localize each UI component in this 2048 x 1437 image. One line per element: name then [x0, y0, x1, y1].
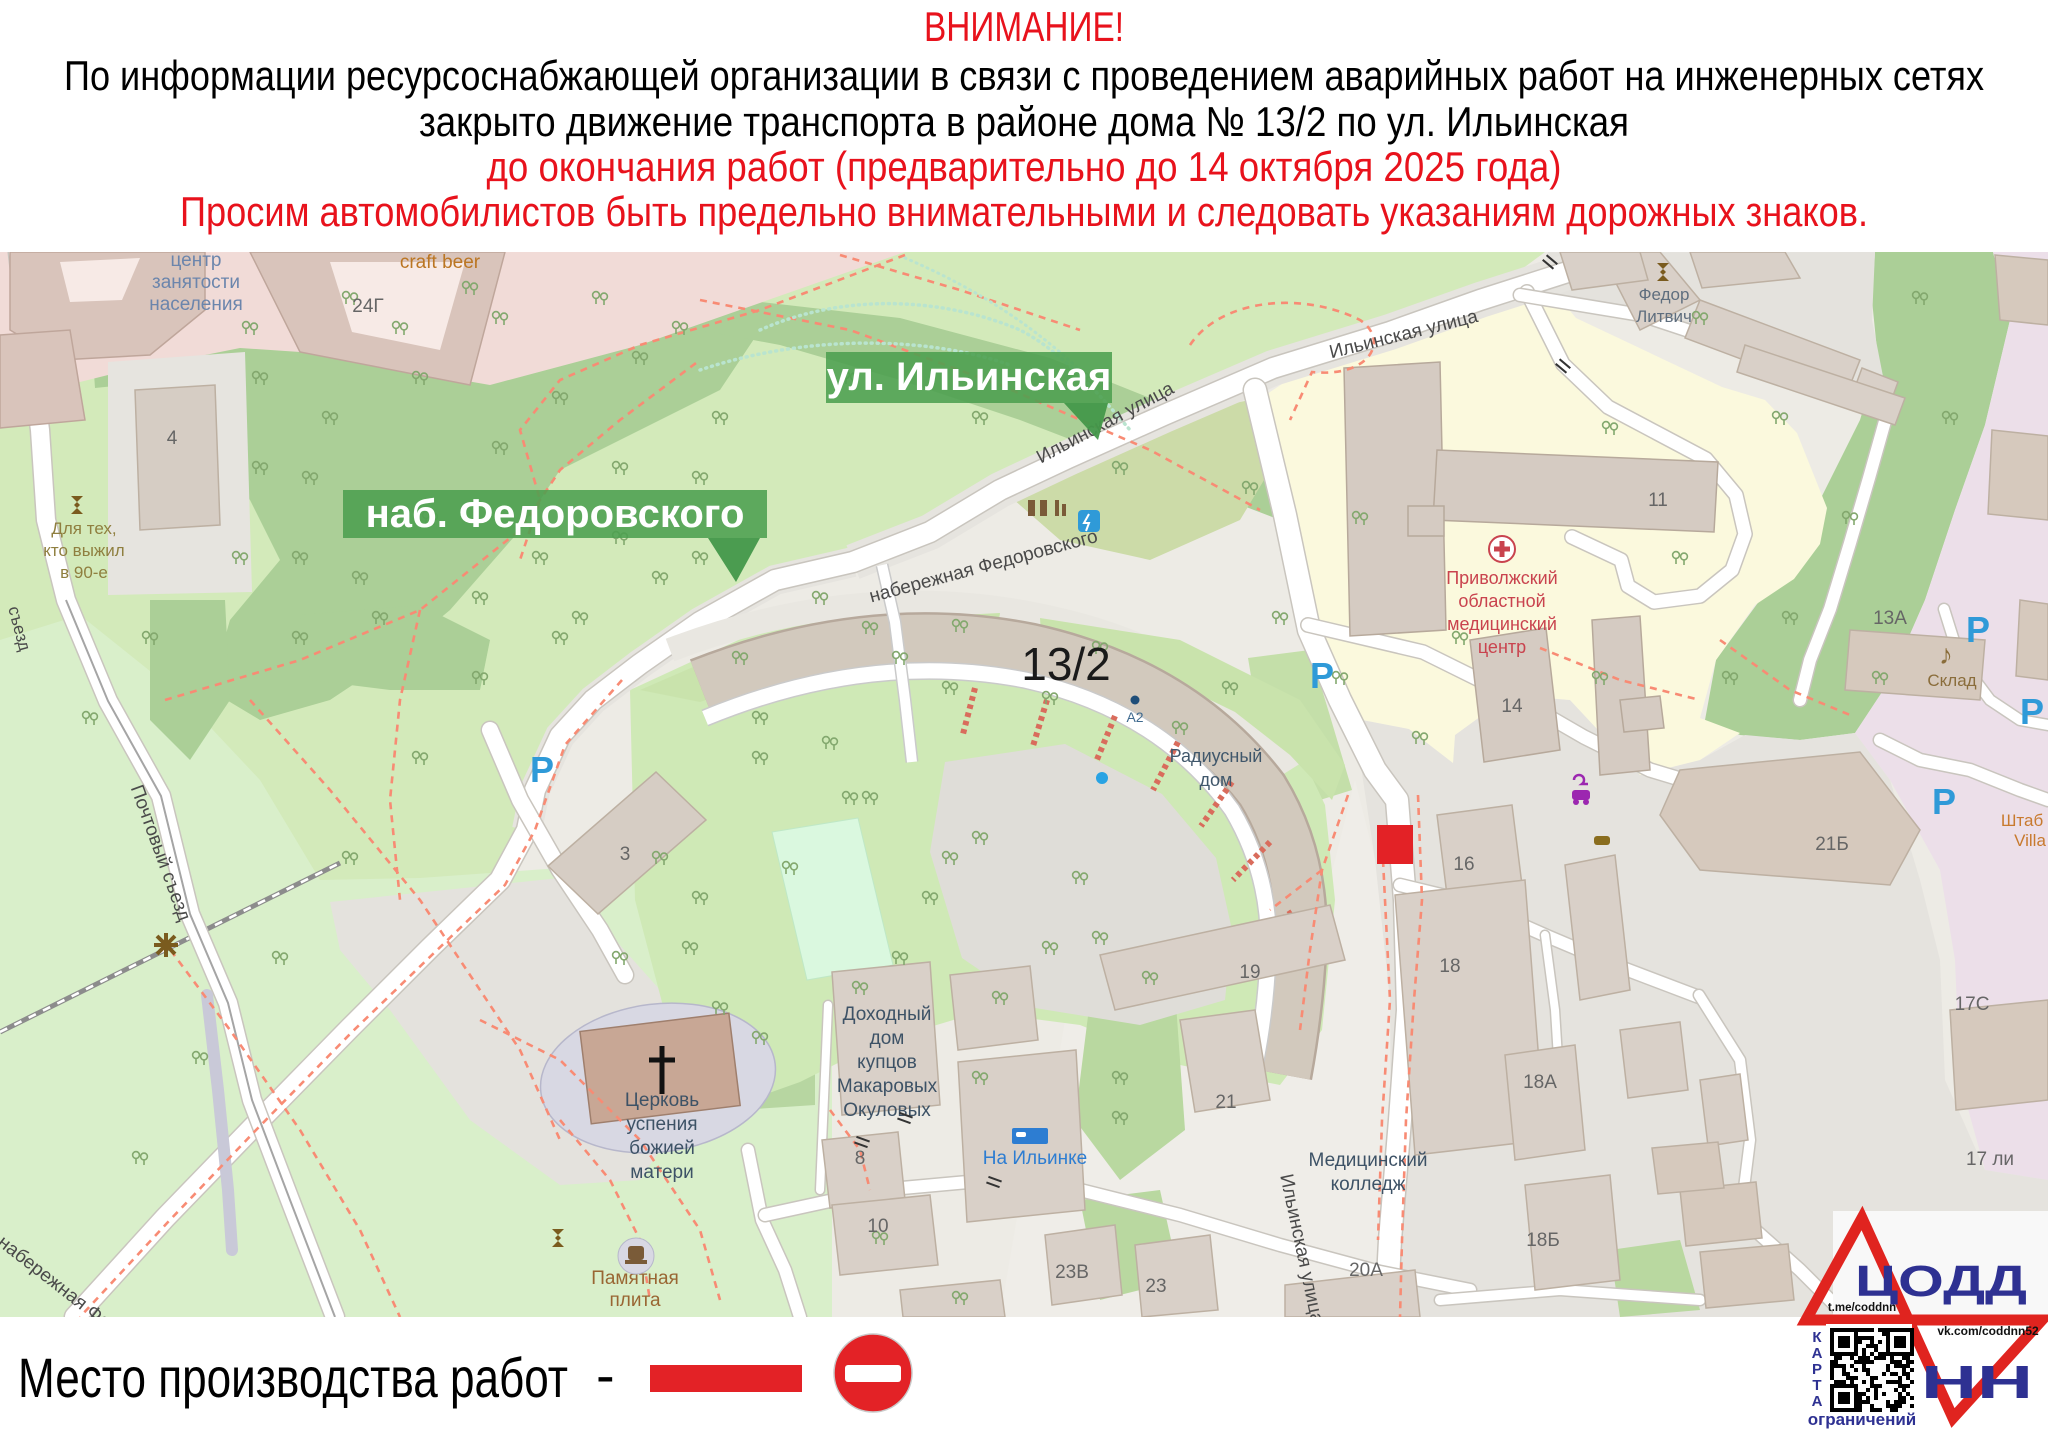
svg-text:дом: дом	[870, 1028, 905, 1049]
svg-text:Приволжский: Приволжский	[1446, 568, 1558, 588]
svg-text:А: А	[1812, 1393, 1823, 1410]
svg-text:центр: центр	[1478, 637, 1526, 657]
svg-text:центр: центр	[171, 250, 222, 271]
svg-text:А: А	[1812, 1345, 1823, 1362]
svg-text:На Ильинке: На Ильинке	[983, 1148, 1087, 1169]
svg-text:18А: 18А	[1523, 1072, 1557, 1093]
svg-text:Макаровых: Макаровых	[837, 1076, 938, 1097]
svg-text:17 ли: 17 ли	[1966, 1149, 2014, 1170]
svg-text:Литвич: Литвич	[1636, 307, 1692, 326]
svg-text:P: P	[1966, 609, 1990, 650]
svg-text:ограничений: ограничений	[1808, 1410, 1917, 1429]
svg-text:P: P	[530, 749, 554, 790]
svg-text:A2: A2	[1126, 709, 1143, 725]
svg-text:областной: областной	[1458, 591, 1545, 611]
svg-text:Villa: Villa	[2014, 831, 2046, 850]
svg-text:vk.com/coddnn52: vk.com/coddnn52	[1937, 1324, 2039, 1338]
svg-text:4: 4	[167, 428, 178, 449]
svg-text:21: 21	[1215, 1092, 1236, 1113]
svg-text:19: 19	[1239, 962, 1260, 983]
svg-text:Место производства работ: Место производства работ	[18, 1346, 568, 1409]
svg-text:Р: Р	[1812, 1361, 1822, 1378]
svg-text:P: P	[2020, 691, 2044, 732]
svg-text:ЦОДД: ЦОДД	[1855, 1257, 2027, 1306]
svg-text:Просим автомобилистов быть пре: Просим автомобилистов быть предельно вни…	[180, 188, 1868, 235]
svg-text:17С: 17С	[1955, 994, 1990, 1015]
svg-text:матери: матери	[630, 1162, 693, 1183]
svg-text:23В: 23В	[1055, 1262, 1089, 1283]
svg-text:18Б: 18Б	[1526, 1230, 1560, 1251]
svg-text:Штаб: Штаб	[2001, 811, 2044, 830]
svg-text:18: 18	[1439, 956, 1460, 977]
svg-text:21Б: 21Б	[1815, 834, 1849, 855]
svg-text:Для тех,: Для тех,	[51, 519, 116, 538]
svg-text:медицинский: медицинский	[1447, 614, 1557, 634]
svg-text:t.me/coddnn: t.me/coddnn	[1828, 1302, 1896, 1314]
svg-text:По информации ресурсоснабжающе: По информации ресурсоснабжающей организа…	[64, 52, 1984, 99]
svg-text:16: 16	[1453, 854, 1474, 875]
svg-text:Церковь: Церковь	[625, 1090, 699, 1111]
svg-text:20А: 20А	[1349, 1260, 1383, 1281]
svg-text:занятости: занятости	[152, 272, 240, 293]
svg-text:населения: населения	[149, 294, 243, 315]
svg-text:Окуловых: Окуловых	[843, 1100, 931, 1121]
svg-text:Т: Т	[1812, 1377, 1821, 1394]
svg-text:плита: плита	[609, 1290, 660, 1311]
svg-text:в 90-е: в 90-е	[60, 563, 108, 582]
svg-text:Доходный: Доходный	[843, 1004, 932, 1025]
svg-text:10: 10	[867, 1216, 888, 1237]
svg-text:ул. Ильинская: ул. Ильинская	[827, 355, 1112, 399]
svg-text:божией: божией	[629, 1138, 695, 1159]
svg-text:8: 8	[855, 1148, 866, 1169]
svg-text:дом: дом	[1200, 770, 1233, 790]
svg-text:Радиусный: Радиусный	[1170, 746, 1263, 766]
svg-text:-: -	[596, 1343, 615, 1406]
svg-text:Медицинский: Медицинский	[1309, 1150, 1428, 1171]
svg-text:13/2: 13/2	[1021, 638, 1111, 690]
svg-text:♪: ♪	[1939, 639, 1953, 670]
svg-text:P: P	[1310, 655, 1334, 696]
svg-text:ВНИМАНИЕ!: ВНИМАНИЕ!	[924, 3, 1124, 50]
svg-text:14: 14	[1501, 696, 1523, 717]
svg-text:P: P	[1932, 781, 1956, 822]
svg-text:3: 3	[620, 844, 631, 865]
svg-text:до окончания работ (предварите: до окончания работ (предварительно до 14…	[487, 143, 1562, 190]
svg-text:кто выжил: кто выжил	[43, 541, 124, 560]
svg-text:закрыто движение транспорта в: закрыто движение транспорта в районе дом…	[419, 98, 1629, 145]
svg-text:craft beer: craft beer	[400, 252, 481, 273]
svg-text:успения: успения	[626, 1114, 697, 1135]
svg-text:Федор: Федор	[1639, 285, 1690, 304]
svg-text:К: К	[1812, 1329, 1822, 1346]
svg-text:на месте: на месте	[596, 1312, 675, 1333]
svg-text:купцов: купцов	[857, 1052, 917, 1073]
svg-text:24Г: 24Г	[352, 296, 383, 317]
svg-text:НН: НН	[1921, 1356, 2033, 1408]
svg-text:Склад: Склад	[1927, 671, 1976, 690]
svg-text:колледж: колледж	[1331, 1174, 1406, 1195]
svg-text:11: 11	[1648, 490, 1668, 511]
svg-text:наб. Федоровского: наб. Федоровского	[366, 492, 745, 536]
svg-text:23: 23	[1145, 1276, 1166, 1297]
svg-text:13А: 13А	[1873, 608, 1907, 629]
